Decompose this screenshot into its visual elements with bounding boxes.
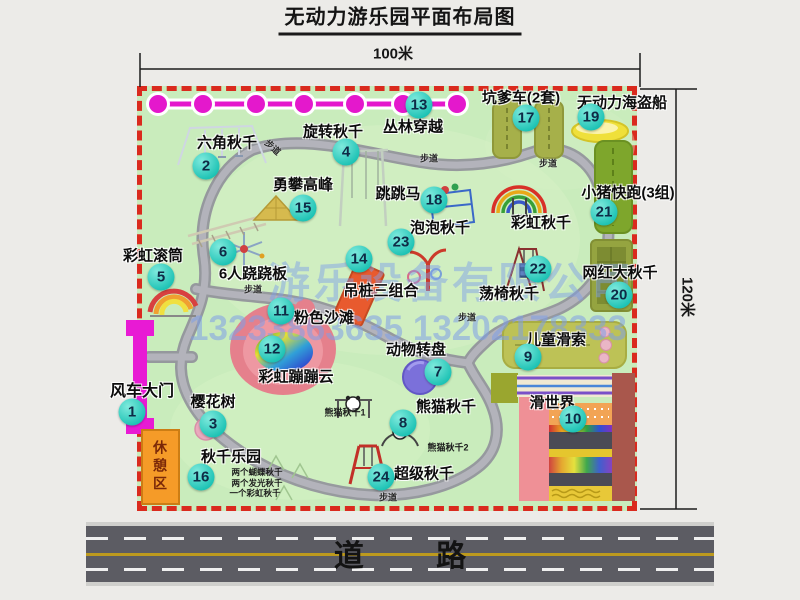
- facility-3-marker: 3: [200, 411, 227, 438]
- panda-swing-1-note: 熊猫秋千1: [324, 406, 365, 419]
- facility-7-label: 动物转盘: [386, 339, 446, 360]
- facility-14-marker: 14: [346, 246, 373, 273]
- facility-10-marker: 10: [560, 406, 587, 433]
- rest-area-label: 休憩区: [150, 440, 170, 494]
- facility-15-marker: 15: [290, 195, 317, 222]
- facility-4-label: 旋转秋千: [303, 121, 363, 142]
- facility-20-label: 网红大秋千: [582, 262, 657, 283]
- facility-5-label: 彩虹滚筒: [123, 245, 183, 266]
- facility-23-label: 泡泡秋千: [410, 217, 470, 238]
- facility-20-marker: 20: [606, 282, 633, 309]
- rainbow-swing-label: 彩虹秋千: [511, 212, 571, 233]
- facility-15-label: 勇攀高峰: [273, 174, 333, 195]
- facility-11-label: 粉色沙滩: [294, 307, 354, 328]
- facility-7-marker: 7: [425, 359, 452, 386]
- facility-22-marker: 22: [525, 256, 552, 283]
- facility-14-label: 吊桩三组合: [343, 280, 418, 301]
- facility-1-label: 风车大门: [110, 377, 174, 401]
- facility-24-marker: 24: [368, 464, 395, 491]
- facility-1-marker: 1: [119, 399, 146, 426]
- trail-label-2: 步道: [420, 152, 438, 165]
- page-title: 无动力游乐园平面布局图: [279, 1, 522, 36]
- facility-12-marker: 12: [259, 336, 286, 363]
- facility-22-label: 荡椅秋千: [479, 283, 539, 304]
- road-label: 道 路: [334, 531, 466, 575]
- trail-label-4: 步道: [244, 283, 262, 296]
- facility-3-label: 樱花树: [190, 391, 235, 412]
- facility-6-label: 6人跷跷板: [219, 263, 287, 284]
- facility-13-label: 丛林穿越: [383, 116, 443, 137]
- width-dimension-label: 100米: [373, 43, 413, 64]
- facility-5-marker: 5: [148, 264, 175, 291]
- trail-label-5: 步道: [458, 311, 476, 324]
- facility-13-marker: 13: [406, 92, 433, 119]
- facility-6-marker: 6: [210, 239, 237, 266]
- facility-24-label: 超级秋千: [394, 463, 454, 484]
- facility-21-marker: 21: [591, 199, 618, 226]
- trail-label-6: 步道: [379, 491, 397, 504]
- facility-4-marker: 4: [333, 139, 360, 166]
- facility-16-marker: 16: [188, 464, 215, 491]
- facility-23-marker: 23: [388, 229, 415, 256]
- panda-swing-2-note: 熊猫秋千2: [427, 441, 468, 454]
- facility-2-marker: 2: [193, 153, 220, 180]
- facility-11-marker: 11: [268, 298, 295, 325]
- facility-2-label: 六角秋千: [197, 132, 257, 153]
- facility-17-marker: 17: [513, 105, 540, 132]
- facility-19-marker: 19: [578, 104, 605, 131]
- facility-9-marker: 9: [515, 344, 542, 371]
- facility-8-label: 熊猫秋千: [416, 396, 476, 417]
- trail-label-3: 步道: [539, 157, 557, 170]
- facility-21-label: 小猪快跑(3组): [581, 182, 674, 203]
- facility-8-marker: 8: [390, 410, 417, 437]
- playground-layout-page: { "title": "无动力游乐园平面布局图", "dimensions": …: [0, 0, 800, 600]
- facility-12-label: 彩虹蹦蹦云: [258, 366, 333, 387]
- facility-18-label: 跳跳马: [375, 183, 420, 204]
- facility-18-marker: 18: [421, 187, 448, 214]
- facility-16-label: 秋千乐园: [201, 446, 261, 467]
- swing-park-note-3: 一个彩虹秋千: [229, 487, 280, 499]
- height-dimension-label: 120米: [678, 277, 699, 317]
